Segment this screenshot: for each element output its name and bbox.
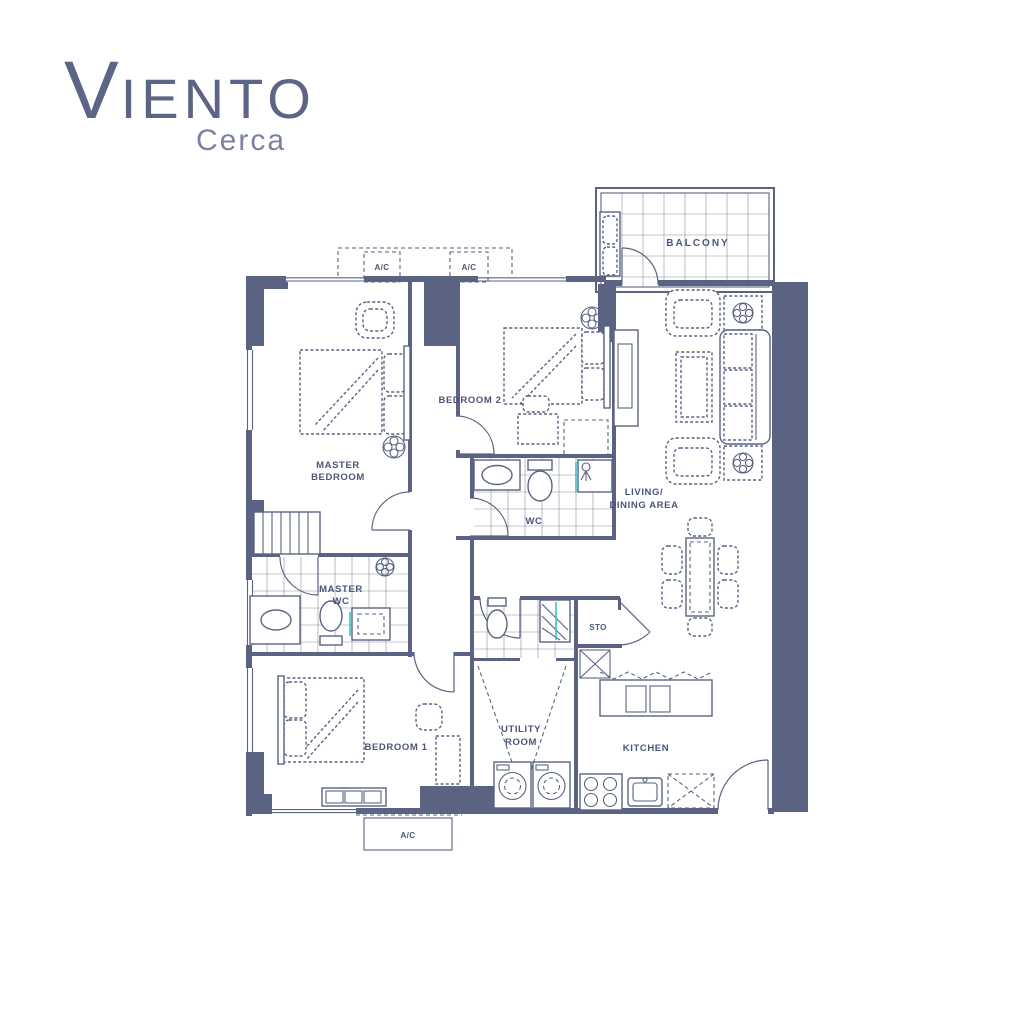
toilet-tank-icon — [320, 636, 342, 645]
sink-icon — [482, 466, 512, 485]
coffee-table-icon — [676, 352, 712, 422]
toilet-tank-icon — [528, 460, 552, 470]
room-label-bedroom2: BEDROOM 2 — [439, 395, 502, 406]
room-label-storage: STO — [589, 623, 607, 632]
entry-door — [718, 760, 768, 810]
living-dining-furniture — [614, 290, 770, 636]
floor-plan: BALCONY MASTER BEDROOM BEDROOM 2 WC MAST… — [0, 0, 1024, 1024]
svg-text:ROOM: ROOM — [505, 737, 537, 748]
svg-text:WC: WC — [332, 596, 349, 607]
room-label-bedroom1: BEDROOM 1 — [365, 742, 428, 753]
tv-console-icon — [614, 330, 638, 426]
dining-set — [662, 518, 738, 636]
sofa-icon — [720, 330, 770, 444]
room-label-wc: WC — [525, 516, 542, 527]
fridge-icon — [580, 650, 610, 678]
dining-chair-icon — [718, 546, 738, 574]
pillow-icon — [582, 368, 604, 400]
dryer-icon — [533, 762, 570, 808]
dining-table-icon — [686, 538, 714, 616]
dining-chair-icon — [662, 580, 682, 608]
bedroom1-door — [414, 652, 454, 692]
kitchen-items — [580, 650, 714, 810]
pillow-icon — [384, 396, 406, 434]
counter-icon — [600, 680, 712, 716]
headboard-icon — [404, 346, 410, 440]
corner-cabinet-icon — [668, 774, 714, 808]
room-label-master-bedroom: MASTER — [316, 460, 360, 471]
master-bedroom-door — [372, 492, 410, 530]
toilet-icon — [528, 471, 552, 501]
side-table-icon — [724, 296, 762, 330]
balcony-door — [622, 248, 658, 284]
room-label-living-dining: LIVING/ — [625, 487, 664, 498]
svg-text:DINING AREA: DINING AREA — [609, 500, 678, 511]
ac-unit-label: A/C — [401, 831, 416, 840]
desk-icon — [518, 414, 558, 444]
master-wc-fixtures — [250, 558, 394, 645]
hob-icon — [580, 774, 622, 810]
armchair-icon — [666, 290, 720, 336]
dining-chair-icon — [662, 546, 682, 574]
pillow-icon — [384, 354, 406, 392]
balcony-bench — [600, 212, 620, 276]
svg-text:BEDROOM: BEDROOM — [311, 472, 365, 483]
chair-icon — [416, 704, 442, 730]
master-wc-door — [280, 557, 318, 595]
master-bedroom-furniture — [254, 302, 410, 554]
bathroom-fixtures — [474, 460, 612, 501]
pillow-icon — [582, 332, 604, 364]
toilet-icon — [487, 610, 507, 638]
ceiling-fan-icon — [383, 436, 405, 458]
side-table-icon — [724, 446, 762, 480]
chair-icon — [523, 396, 549, 412]
wc-door — [470, 498, 508, 536]
storage-door — [618, 600, 650, 645]
room-label-kitchen: KITCHEN — [623, 743, 669, 754]
dining-chair-icon — [718, 580, 738, 608]
pillow-icon — [284, 720, 306, 756]
desk-icon — [436, 736, 460, 784]
ac-unit-label: A/C — [375, 263, 390, 272]
bed-icon — [300, 350, 382, 434]
headboard-icon — [278, 676, 284, 764]
page: VIENTO Cerca — [0, 0, 1024, 1024]
ac-unit-label: A/C — [462, 263, 477, 272]
washer-icon — [494, 762, 531, 808]
pillow-icon — [284, 682, 306, 718]
dining-chair-icon — [688, 518, 712, 536]
wc2-fixtures — [487, 598, 570, 642]
upper-cabinet-icon — [600, 672, 712, 679]
bedroom2-furniture — [504, 307, 610, 456]
wardrobe-icon — [254, 512, 320, 554]
armchair-icon — [666, 438, 720, 484]
ceiling-fan-icon — [376, 558, 394, 576]
sink-icon — [261, 610, 291, 630]
cabinet-icon — [564, 420, 608, 456]
room-label-master-wc: MASTER — [319, 584, 363, 595]
room-label-utility: UTILITY — [501, 724, 541, 735]
toilet-tank-icon — [488, 598, 506, 606]
kitchen-sink-icon — [628, 778, 662, 806]
dresser-icon — [322, 788, 386, 806]
bedroom2-door — [456, 416, 494, 454]
headboard-icon — [604, 326, 610, 408]
room-label-balcony: BALCONY — [666, 238, 729, 249]
dining-chair-icon — [688, 618, 712, 636]
